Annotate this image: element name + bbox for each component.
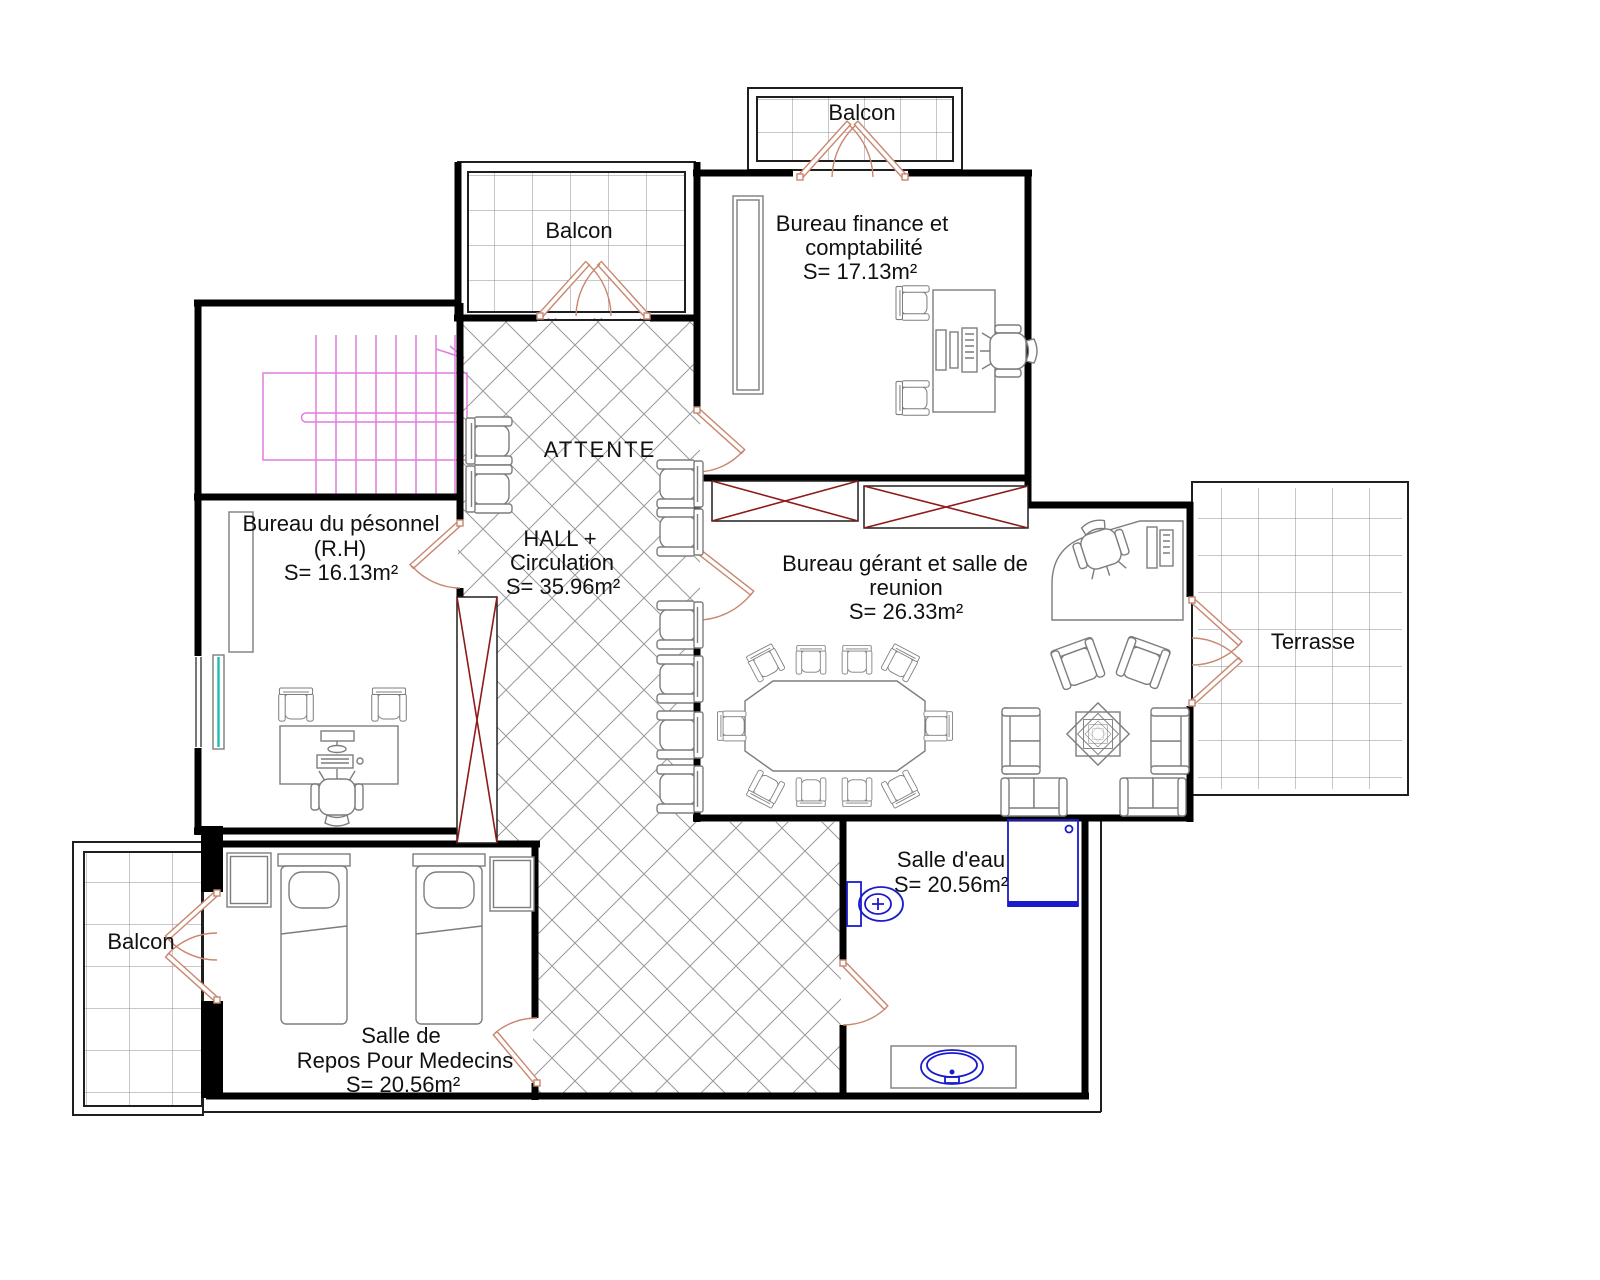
salle-eau-label: Salle d'eau — [897, 847, 1005, 872]
balcon-mid-label: Balcon — [545, 218, 612, 243]
rh-visitor-chair — [279, 688, 314, 721]
hall-label-line2: Circulation — [510, 550, 614, 575]
bed — [413, 854, 485, 1024]
personnel-area-label: S= 16.13m² — [284, 560, 398, 585]
floor-plan-canvas: Balcon Balcon Balcon Bureau finance et c… — [0, 0, 1600, 1280]
repos-furniture — [227, 853, 534, 1024]
rh-keyboard — [317, 755, 353, 768]
shower-icon — [1008, 820, 1078, 907]
attente-label: ATTENTE — [544, 437, 657, 462]
balcon-bottom-tiles — [84, 852, 202, 1106]
repos-area-label: S= 20.56m² — [346, 1072, 460, 1097]
balcon-top-label: Balcon — [828, 100, 895, 125]
sink-icon — [891, 1046, 1016, 1088]
salle-eau-door — [840, 960, 888, 1025]
shaft-x-vertical — [457, 597, 497, 843]
repos-label-line1: Salle de — [361, 1023, 441, 1048]
hall-label-line1: HALL + — [523, 526, 596, 551]
gerant-monitor — [1147, 527, 1157, 568]
finance-label-line1: Bureau finance et — [776, 211, 948, 236]
bed — [278, 854, 350, 1024]
staircase — [263, 335, 467, 497]
rh-monitor — [321, 731, 354, 741]
stair-handrail — [302, 413, 463, 422]
window — [193, 655, 224, 749]
personnel-label-line2: (R.H) — [314, 536, 367, 561]
rh-visitor-chair — [372, 688, 407, 721]
finance-visitor-chair — [896, 286, 929, 321]
meeting-table — [745, 681, 925, 771]
salle-eau-area-label: S= 20.56m² — [894, 872, 1008, 897]
gerant-label-line2: reunion — [869, 575, 942, 600]
closet-x-2 — [864, 486, 1028, 528]
nightstand — [490, 857, 534, 911]
gerant-label-line1: Bureau gérant et salle de — [782, 551, 1028, 576]
hall-area-label: S= 35.96m² — [506, 574, 620, 599]
lounge-seating — [1001, 636, 1189, 816]
finance-area-label: S= 17.13m² — [803, 259, 917, 284]
star-coffee-table — [1067, 703, 1129, 765]
gerant-area-label: S= 26.33m² — [849, 599, 963, 624]
personnel-label-line1: Bureau du pésonnel — [243, 511, 440, 536]
nightstand — [227, 853, 271, 907]
finance-visitor-chair — [896, 381, 929, 416]
terrasse-label: Terrasse — [1271, 629, 1355, 654]
finance-monitor — [950, 332, 958, 368]
rh-mouse — [357, 758, 363, 764]
balcon-bottom-label: Balcon — [107, 929, 174, 954]
finance-keyboard — [936, 330, 946, 370]
floor-plan-page: Balcon Balcon Balcon Bureau finance et c… — [0, 0, 1600, 1280]
repos-label-line2: Repos Pour Medecins — [297, 1048, 513, 1073]
closet-x-1 — [712, 481, 858, 521]
finance-label-line2: comptabilité — [805, 235, 922, 260]
